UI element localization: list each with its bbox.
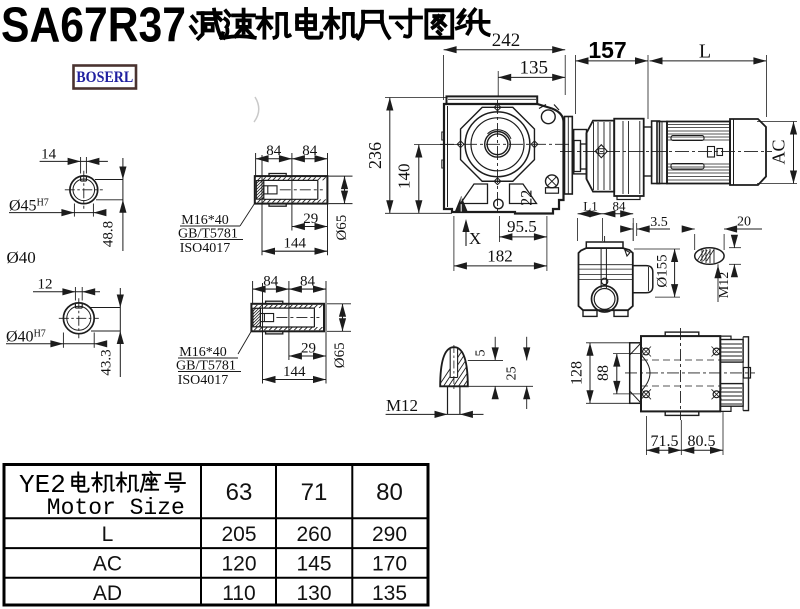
svg-text:3.5: 3.5	[650, 215, 668, 230]
svg-text:20: 20	[737, 215, 751, 230]
svg-text:29: 29	[301, 341, 316, 357]
svg-text:80.5: 80.5	[688, 433, 716, 450]
svg-text:130: 130	[296, 582, 331, 605]
svg-text:80: 80	[376, 479, 403, 506]
svg-text:182: 182	[487, 247, 513, 266]
svg-text:X: X	[469, 229, 481, 248]
svg-text:144: 144	[283, 364, 306, 380]
svg-text:Ø65: Ø65	[332, 342, 348, 368]
svg-text:M12: M12	[386, 396, 418, 415]
svg-text:29: 29	[303, 211, 318, 227]
svg-text:Motor Size: Motor Size	[47, 495, 185, 521]
svg-text:140: 140	[395, 163, 414, 189]
svg-text:236: 236	[365, 142, 385, 169]
svg-text:AD: AD	[93, 582, 122, 605]
svg-text:63: 63	[226, 479, 253, 506]
svg-text:L: L	[699, 41, 711, 63]
svg-text:M12: M12	[717, 272, 732, 298]
svg-text:ISO4017: ISO4017	[180, 241, 231, 256]
svg-text:14: 14	[41, 147, 57, 163]
svg-text:290: 290	[372, 523, 407, 546]
svg-text:110: 110	[222, 582, 255, 605]
svg-text:84: 84	[300, 273, 316, 289]
svg-text:135: 135	[520, 58, 549, 79]
svg-text:43.3: 43.3	[99, 349, 115, 375]
svg-text:22: 22	[519, 190, 536, 206]
svg-text:84: 84	[263, 273, 279, 289]
svg-text:145: 145	[296, 552, 331, 575]
svg-text:84: 84	[302, 143, 318, 159]
svg-text:95.5: 95.5	[507, 217, 537, 236]
svg-text:135: 135	[372, 582, 407, 605]
svg-text:260: 260	[296, 523, 331, 546]
svg-text:170: 170	[372, 552, 407, 575]
svg-text:71: 71	[301, 479, 328, 506]
svg-text:84: 84	[613, 199, 627, 214]
svg-text:120: 120	[221, 552, 256, 575]
svg-text:88: 88	[595, 365, 612, 381]
svg-text:L: L	[102, 523, 114, 546]
svg-text:ISO4017: ISO4017	[178, 373, 229, 388]
svg-text:Ø65: Ø65	[334, 215, 350, 241]
svg-text:BOSERL: BOSERL	[76, 69, 133, 86]
svg-text:157: 157	[588, 37, 626, 63]
svg-text:242: 242	[492, 30, 521, 51]
svg-text:144: 144	[284, 236, 307, 252]
svg-text:5: 5	[474, 350, 489, 357]
svg-text:71.5: 71.5	[651, 433, 679, 450]
svg-text:Ø40: Ø40	[7, 248, 36, 267]
svg-text:AC: AC	[93, 552, 122, 575]
svg-text:25: 25	[505, 366, 520, 380]
svg-text:Ø155: Ø155	[654, 254, 670, 287]
svg-text:L1: L1	[583, 199, 597, 214]
svg-text:48.8: 48.8	[100, 221, 116, 247]
svg-text:SA67R37: SA67R37	[1, 0, 186, 53]
svg-text:84: 84	[266, 143, 282, 159]
svg-text:205: 205	[221, 523, 256, 546]
svg-text:128: 128	[568, 361, 585, 385]
svg-text:12: 12	[38, 277, 53, 293]
